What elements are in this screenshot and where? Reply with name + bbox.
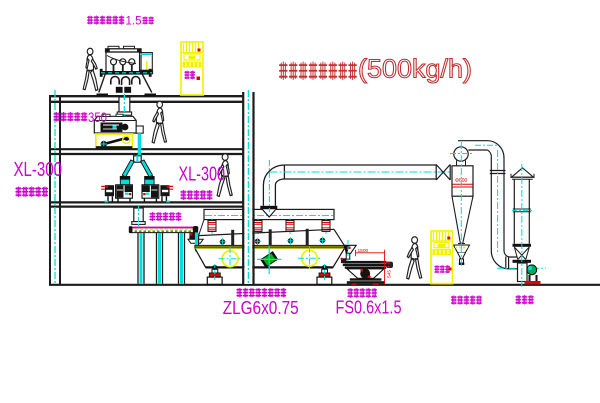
svg-text:(500kg/h): (500kg/h) bbox=[358, 54, 472, 84]
svg-text:545: 545 bbox=[387, 270, 393, 278]
svg-text:FS0.6x1.5: FS0.6x1.5 bbox=[336, 298, 402, 318]
svg-text:350: 350 bbox=[88, 110, 107, 125]
svg-text:1500: 1500 bbox=[358, 248, 369, 254]
svg-text:XL-300: XL-300 bbox=[179, 164, 226, 186]
svg-text:1.5: 1.5 bbox=[126, 16, 142, 28]
svg-text:XL-300: XL-300 bbox=[14, 159, 63, 181]
svg-text:ZLG6x0.75: ZLG6x0.75 bbox=[223, 298, 299, 318]
